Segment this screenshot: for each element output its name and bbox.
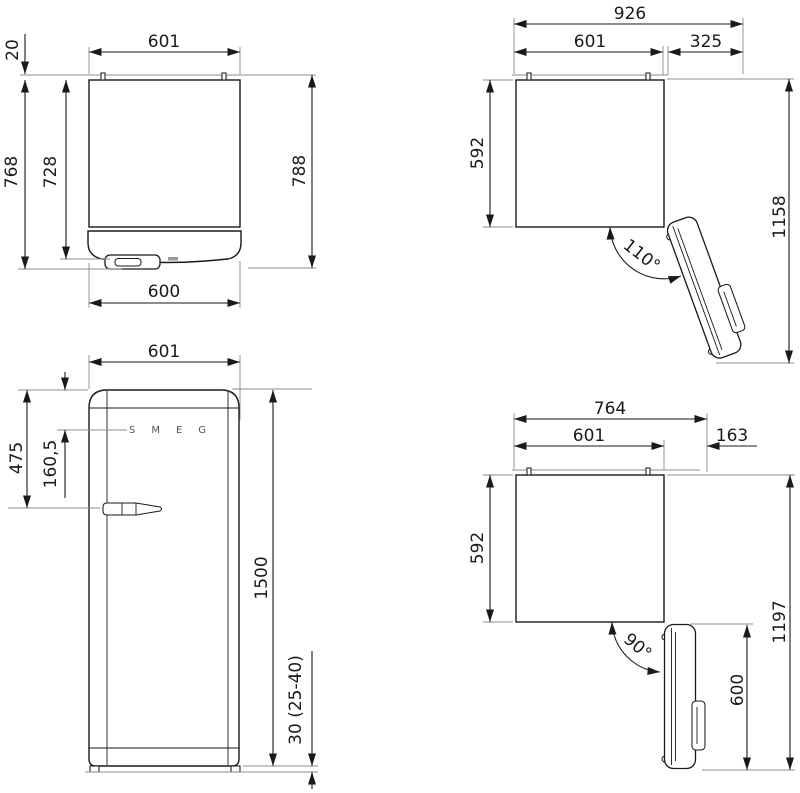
dimension-depth-total-788: 788 (248, 75, 316, 268)
fridge-front-outline (89, 390, 239, 766)
dimension-label: 1500 (252, 556, 272, 599)
dimension-label: 325 (690, 32, 722, 52)
dimension-depth-no-wall-768: 768 (2, 80, 122, 269)
dimension-door-swing-325: 325 (668, 32, 743, 75)
brand-logo: SMEG (129, 425, 222, 436)
fridge-body-top-view (516, 475, 664, 622)
dimension-label: 601 (574, 32, 606, 52)
dimension-overall-width-764: 764 (514, 399, 707, 472)
dimension-label: 163 (716, 426, 748, 446)
dimension-label: 592 (468, 532, 488, 564)
hinge-pin-right (222, 73, 226, 80)
door-handle-inner (115, 259, 141, 267)
view-front: 601 SMEG 475 160,5 1500 (7, 342, 318, 789)
dimension-label: 600 (148, 282, 180, 302)
dimension-top-to-logo-160-5: 160,5 (41, 372, 127, 498)
dimension-label: 1158 (770, 195, 790, 238)
technical-drawing-page: 601 20 768 728 788 600 (0, 0, 800, 793)
dimension-label: 768 (2, 156, 22, 188)
dimension-body-depth-592: 592 (468, 80, 513, 227)
dimension-label: 30 (25-40) (286, 655, 306, 745)
dimension-label: 764 (594, 399, 626, 419)
dimension-door-offset-163: 163 (707, 426, 757, 446)
hinge-pin-left (527, 468, 531, 475)
view-top-open-110: 926 601 325 592 1158 110° (468, 4, 794, 363)
dimension-body-depth-592: 592 (468, 475, 513, 622)
dimension-label: 1197 (770, 600, 790, 643)
fridge-body-top-view (89, 80, 240, 227)
dimension-rear-gap-20: 20 (3, 34, 25, 74)
dimension-label: 601 (148, 32, 180, 52)
dimension-label: 20 (3, 39, 23, 61)
view-top-open-90: 764 601 163 592 1197 600 (468, 399, 795, 770)
dimension-label: 728 (41, 156, 61, 188)
technical-drawing-canvas: 601 20 768 728 788 600 (0, 0, 800, 793)
dimension-label: 601 (148, 342, 180, 362)
dimension-label: 788 (290, 155, 310, 187)
dimension-label: 600 (728, 674, 748, 706)
door-handle-front-view (103, 503, 162, 515)
dimension-depth-body-728: 728 (41, 80, 110, 259)
dimension-plinth-30-25-40: 30 (25-40) (286, 651, 312, 789)
dimension-label: 475 (7, 442, 27, 474)
angle-label: 90° (619, 629, 655, 664)
dimension-label: 601 (573, 426, 605, 446)
hinge-pin-left (527, 73, 531, 80)
open-door-90 (662, 625, 705, 769)
foot-right (231, 766, 240, 772)
hinge-pin-left (101, 73, 105, 80)
dimension-width-top-601: 601 (89, 32, 240, 74)
door-vent-slot (168, 257, 178, 261)
dimension-body-width-601: 601 (514, 426, 664, 470)
foot-left (90, 766, 99, 772)
dimension-label: 160,5 (41, 440, 61, 489)
hinge-pin-right (646, 468, 650, 475)
fridge-body-top-view (516, 80, 664, 227)
dimension-label: 592 (468, 137, 488, 169)
open-door-110 (663, 211, 753, 361)
dimension-label: 926 (614, 4, 646, 24)
angle-label: 110° (619, 235, 664, 276)
hinge-pin-right (646, 73, 650, 80)
view-top-closed: 601 20 768 728 788 600 (2, 32, 316, 308)
dimension-body-width-601: 601 (514, 32, 663, 75)
